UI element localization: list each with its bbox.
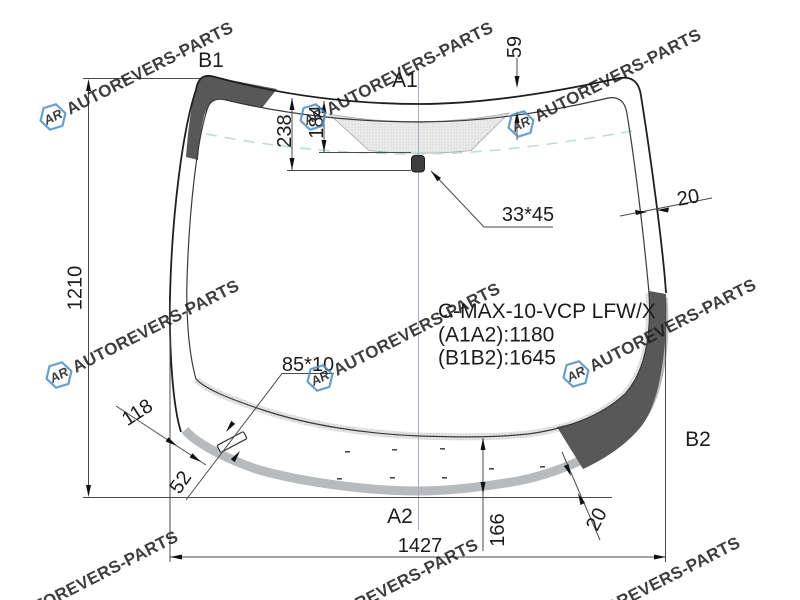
watermark-text: AUTOREVERS-PARTS <box>570 533 743 600</box>
dim-33x45-label: 33*45 <box>502 204 554 226</box>
rain-sensor <box>412 156 425 173</box>
part-dim-b1b2: (B1B2):1645 <box>438 347 556 370</box>
watermark: AUTOREVERS-PARTS <box>281 532 482 600</box>
dim-166-label: 166 <box>487 513 509 546</box>
watermark: AUTOREVERS-PARTS <box>543 530 744 600</box>
label-b1: B1 <box>198 49 224 72</box>
dim-118-label: 118 <box>118 395 157 431</box>
windshield-drawing: B1 A1 B2 A2 C-MAX-10-VCP LFW/X (A1A2):11… <box>0 0 800 600</box>
windshield-diagram-page: B1 A1 B2 A2 C-MAX-10-VCP LFW/X (A1A2):11… <box>0 0 800 600</box>
dim-59-label: 59 <box>504 36 526 58</box>
dim-1210-label: 1210 <box>65 266 87 311</box>
part-dim-a1a2: (A1A2):1180 <box>438 324 554 347</box>
dim-20-right-label: 20 <box>675 185 701 211</box>
watermark: AUTOREVERS-PARTS <box>0 524 182 600</box>
dim-238-label: 238 <box>274 114 296 147</box>
label-b2: B2 <box>685 428 711 451</box>
watermark-text: AUTOREVERS-PARTS <box>8 527 181 600</box>
label-a2: A2 <box>387 505 413 528</box>
watermark-text: AUTOREVERS-PARTS <box>308 535 481 600</box>
